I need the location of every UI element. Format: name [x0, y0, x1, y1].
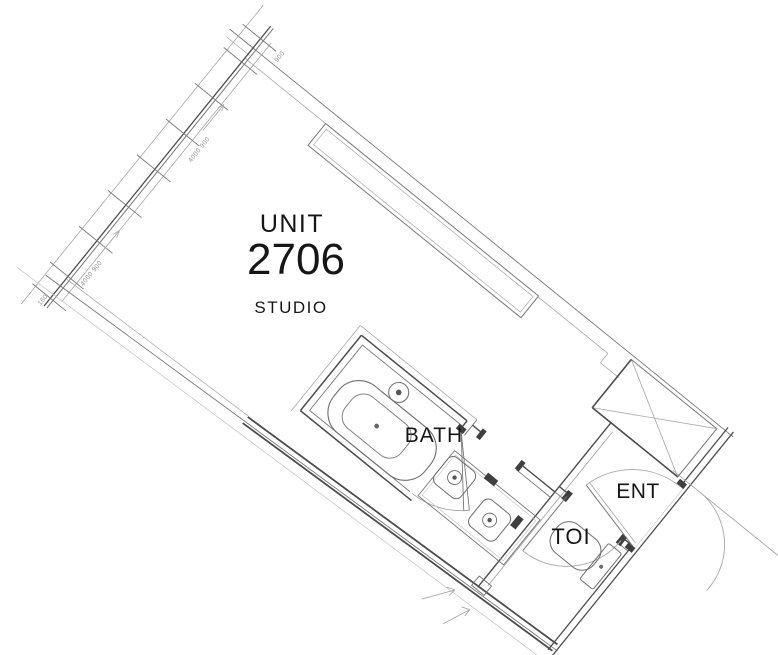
vanity [418, 447, 543, 564]
facade-dimension-text: 900 [273, 50, 286, 64]
window-mullion-ticks [32, 24, 276, 311]
toilet-flush-dot [598, 564, 604, 570]
floor-plan-page: 900 4000 900 4000 900 160 [0, 0, 778, 655]
tub-drain-dot [373, 423, 380, 430]
leader-arrow [443, 602, 470, 631]
top-wall-inner-line [245, 58, 326, 123]
wall-panel [308, 124, 539, 318]
dimension-arrow [96, 229, 121, 259]
bath-label: BATH [405, 424, 463, 447]
exterior-walls: 900 4000 900 4000 900 160 [0, 0, 778, 655]
bath-door-swing-arc [412, 476, 469, 528]
vanity-counter [418, 451, 540, 565]
floor-plan-svg: 900 4000 900 4000 900 160 [0, 0, 778, 655]
shaft-cross-icon [592, 359, 717, 476]
ent-label: ENT [616, 480, 660, 503]
service-shaft [592, 359, 717, 476]
counter-fixture [510, 515, 524, 530]
wall-step [600, 363, 619, 378]
unit-plan-group: 900 4000 900 4000 900 160 [0, 0, 778, 655]
bottom-wall [17, 231, 591, 655]
ceiling-light-dot [395, 389, 403, 397]
facade-glazing-line [47, 28, 274, 308]
unit-type-label: STUDIO [254, 298, 327, 317]
passage-wall [468, 422, 557, 497]
facade-dimension-text: 4000 900 [187, 136, 212, 164]
unit-label: UNIT [260, 210, 324, 238]
corridor-wall-line [673, 470, 778, 560]
facade-glazing-line [44, 26, 271, 306]
facade-inner-line [61, 43, 271, 302]
leader-arrow [422, 577, 455, 611]
toi-label: TOI [551, 524, 590, 549]
sink-drain-dot [451, 474, 457, 480]
unit-number: 2706 [247, 235, 345, 284]
wall-step [600, 353, 608, 362]
sink-drain-dot [487, 517, 493, 523]
facade-dimension-text: 160 [37, 293, 50, 307]
top-wall-inner-line [538, 297, 608, 354]
